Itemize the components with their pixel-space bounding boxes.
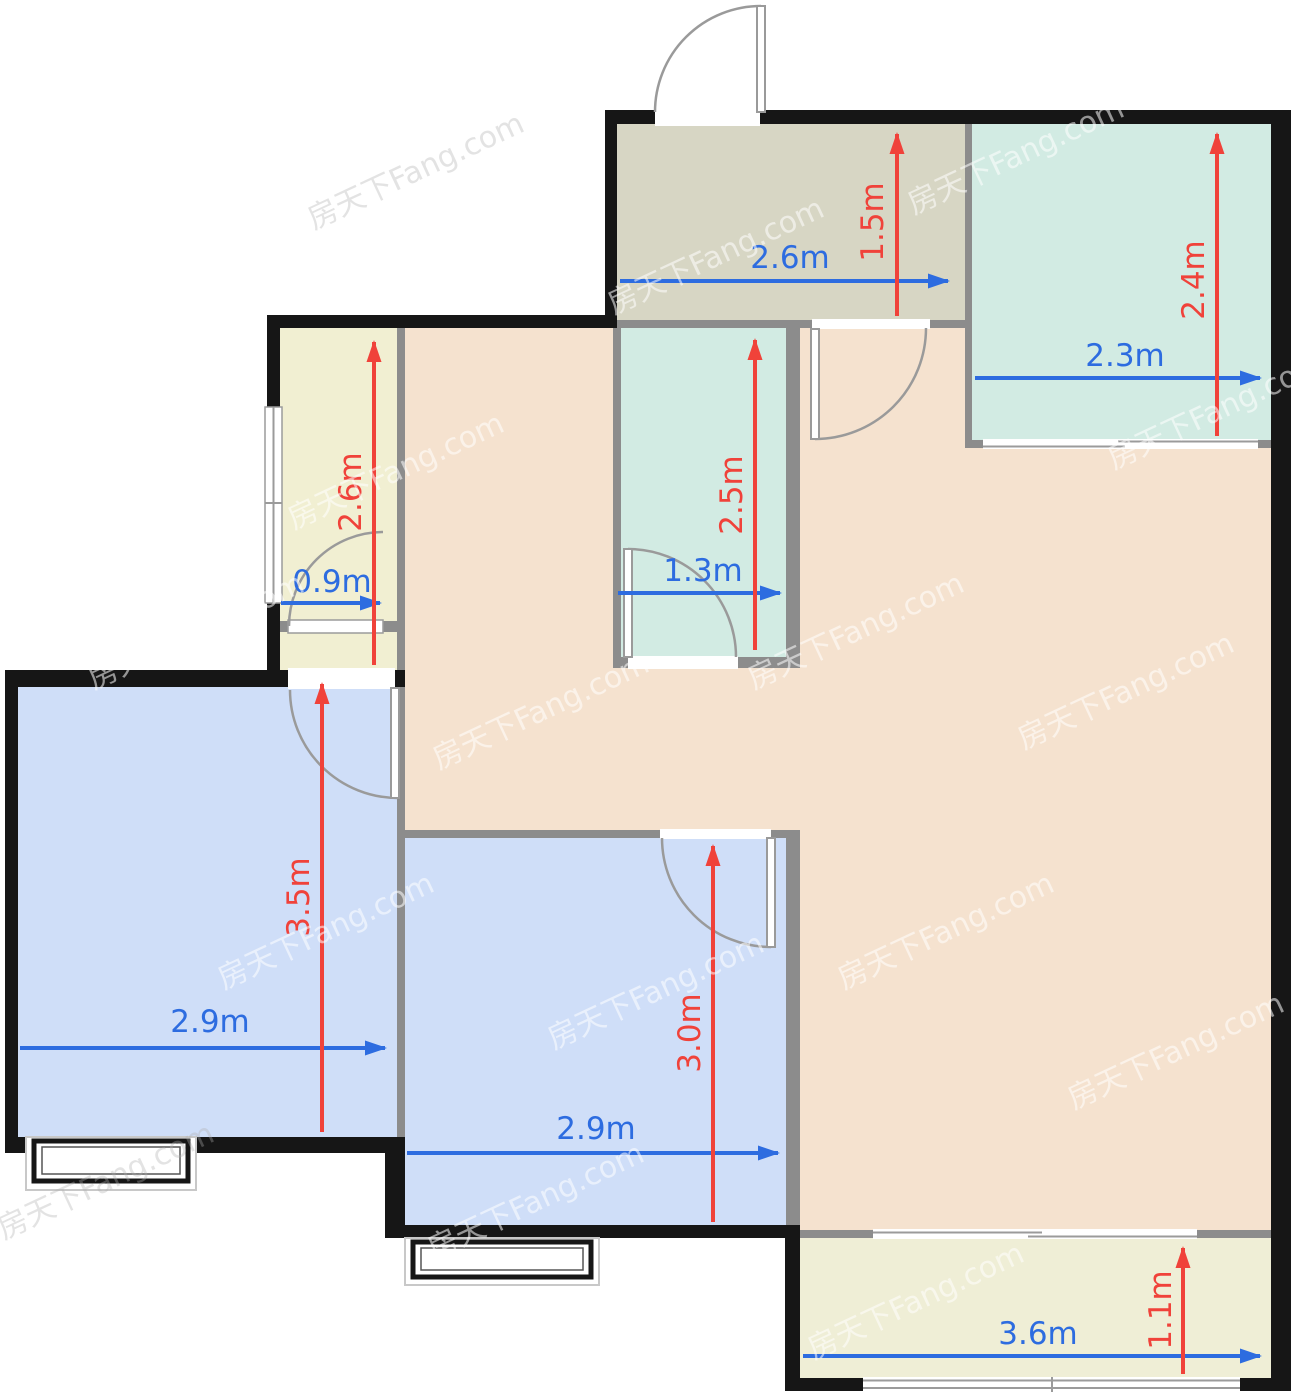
wall-segment bbox=[930, 320, 972, 328]
dim-label: 2.3m bbox=[1085, 338, 1165, 374]
dim-label: 1.3m bbox=[663, 553, 743, 589]
bedroom-center-door-opening bbox=[660, 829, 771, 839]
hall-door-opening bbox=[812, 319, 930, 329]
wall-segment bbox=[267, 315, 280, 410]
dim-label: 3.6m bbox=[998, 1316, 1078, 1352]
wall-segment bbox=[1271, 110, 1291, 1391]
wall-segment bbox=[395, 670, 405, 687]
floorplan-svg: 2.6m 2.3m 0.9m 1.3m 2.9m 2.9m 3.6m bbox=[0, 0, 1291, 1400]
dim-label: 2.5m bbox=[714, 455, 750, 535]
balcony-sliding-door bbox=[873, 1229, 1197, 1239]
wall-segment bbox=[613, 320, 621, 668]
wall-segment bbox=[5, 670, 18, 1153]
floorplan-page: 2.6m 2.3m 0.9m 1.3m 2.9m 2.9m 3.6m bbox=[0, 0, 1291, 1400]
entrance-door bbox=[655, 6, 765, 112]
wall-segment bbox=[267, 315, 617, 328]
dim-label: 2.9m bbox=[170, 1004, 250, 1040]
wall-segment bbox=[613, 320, 812, 328]
wall-segment bbox=[786, 830, 800, 1230]
room-fills bbox=[18, 122, 1281, 1378]
balcony-window bbox=[863, 1377, 1240, 1392]
dim-label: 1.5m bbox=[855, 182, 891, 262]
wall-segment bbox=[785, 1230, 800, 1391]
entrance-opening bbox=[655, 108, 760, 126]
wall-segment bbox=[385, 1137, 405, 1238]
dim-label: 1.1m bbox=[1143, 1270, 1179, 1350]
wall-segment bbox=[760, 110, 1291, 124]
wall-segment bbox=[786, 320, 800, 668]
dim-label: 3.0m bbox=[672, 993, 708, 1073]
bedroom-left-door-opening bbox=[288, 668, 395, 689]
watermark-text: 房天下Fang.com bbox=[302, 106, 529, 237]
dim-label: 2.4m bbox=[1176, 240, 1212, 320]
room-bathroom bbox=[617, 325, 786, 662]
closet-door-opening bbox=[288, 620, 383, 633]
